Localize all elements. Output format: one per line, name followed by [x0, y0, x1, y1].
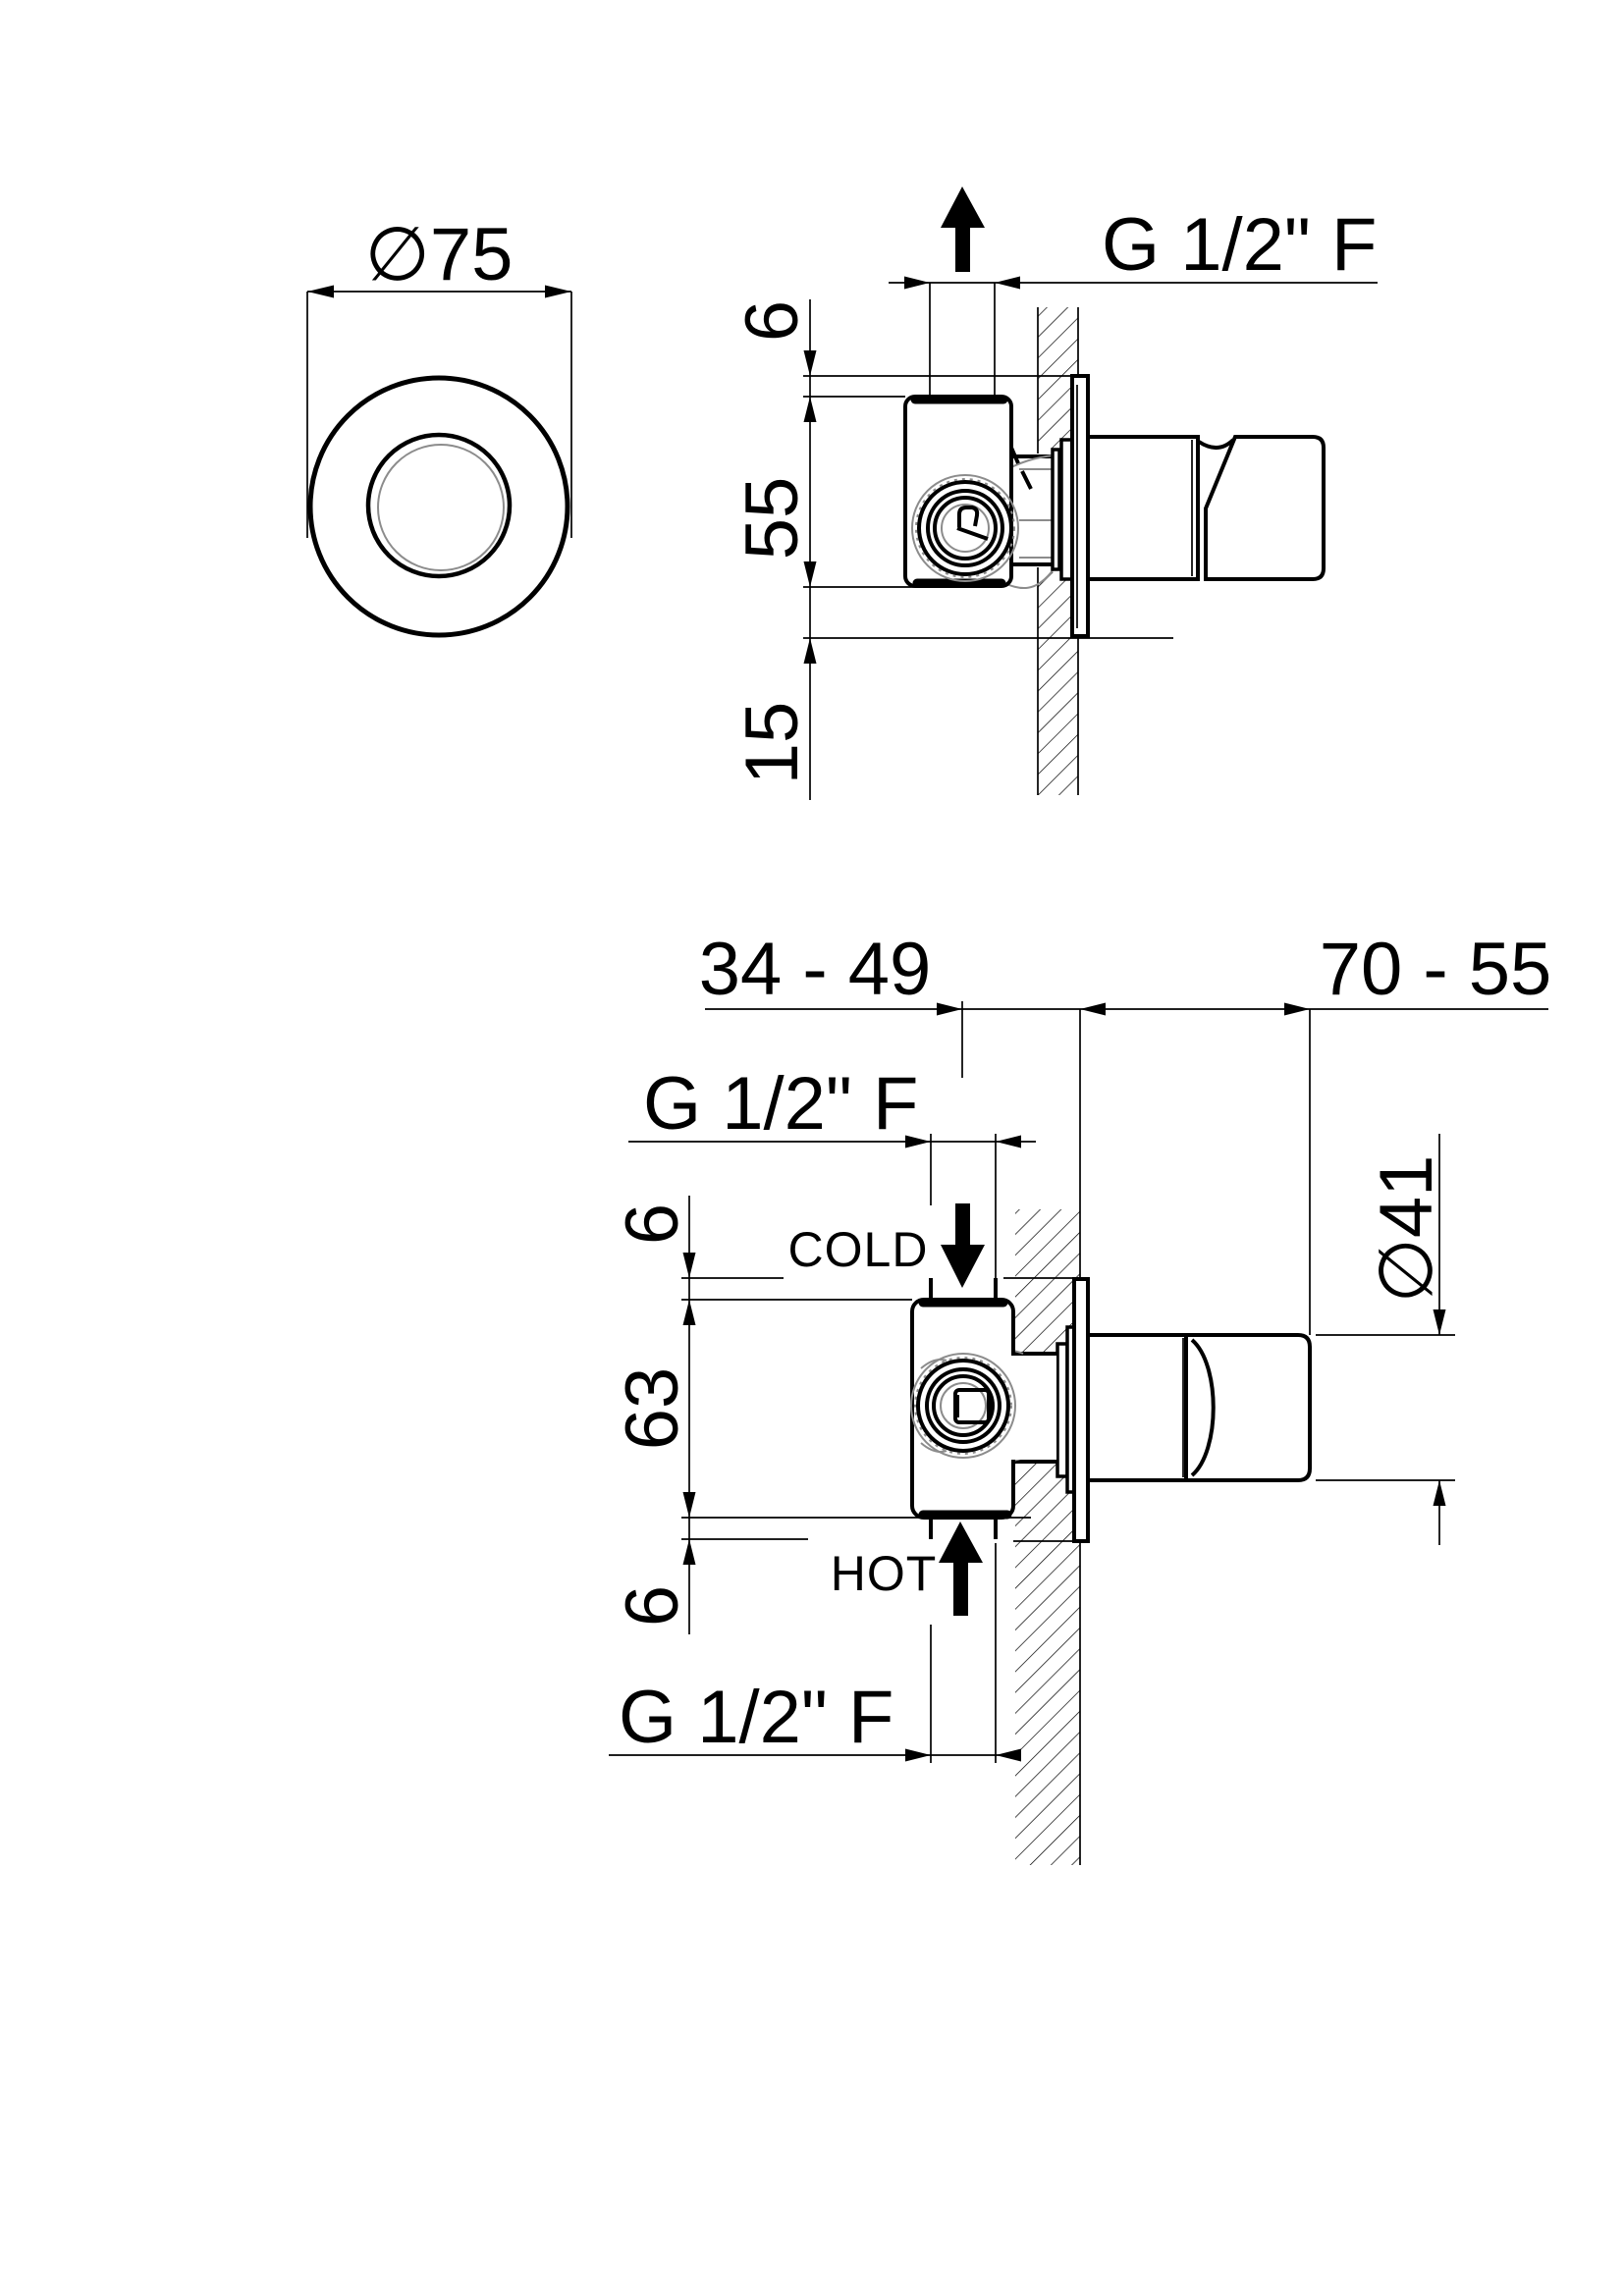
section-depth-range: 34 - 49	[699, 928, 932, 1011]
section-dim-top-offset: 6	[611, 1203, 694, 1245]
side-view: 6 55 15 G 1/2" F	[731, 187, 1378, 800]
section-handle-diameter-label: ∅41	[1365, 1155, 1448, 1304]
section-hot-port-label: G 1/2" F	[619, 1676, 893, 1759]
hot-flow-arrow-up-icon	[939, 1522, 983, 1616]
side-view-collar-inner	[1053, 450, 1059, 569]
escutcheon-inner-circle	[368, 435, 510, 576]
front-view-diameter-dimension: ∅75	[307, 213, 571, 538]
side-port-label: G 1/2" F	[1102, 203, 1377, 287]
side-dim-bottom-offset: 15	[731, 702, 814, 785]
front-diameter-label: ∅75	[365, 213, 514, 296]
escutcheon-outer-circle	[310, 378, 568, 635]
section-protrusion-range: 70 - 55	[1320, 928, 1552, 1011]
hot-label: HOT	[831, 1546, 938, 1601]
section-view: 34 - 49 70 - 55 G 1/2" F 6 63 6	[609, 928, 1551, 1865]
outlet-flow-arrow-up-icon	[941, 187, 985, 272]
side-view-handle	[1088, 437, 1324, 579]
cold-flow-arrow-down-icon	[941, 1203, 985, 1288]
section-dim-body-height: 63	[611, 1367, 694, 1451]
side-view-escutcheon	[1072, 376, 1088, 636]
front-view: ∅75	[307, 213, 571, 635]
section-view-handle-diameter-dimension: ∅41	[1316, 1134, 1455, 1545]
section-view-escutcheon	[1074, 1279, 1088, 1541]
side-dim-body-height: 55	[731, 477, 814, 561]
section-view-handle	[1088, 1335, 1310, 1480]
technical-drawing: ∅75 6 55 15	[0, 0, 1624, 2296]
section-cold-port-label: G 1/2" F	[643, 1062, 918, 1146]
dim-arrow-right	[545, 286, 571, 298]
dim-arrow-left	[307, 286, 334, 298]
escutcheon-inner-shadow	[378, 445, 504, 570]
drawing-page: ∅75 6 55 15	[0, 0, 1624, 2296]
cold-label: COLD	[788, 1222, 929, 1277]
side-view-valve-body	[905, 397, 1018, 586]
side-dim-top-offset: 6	[731, 300, 814, 342]
section-dim-bottom-offset: 6	[611, 1585, 694, 1627]
